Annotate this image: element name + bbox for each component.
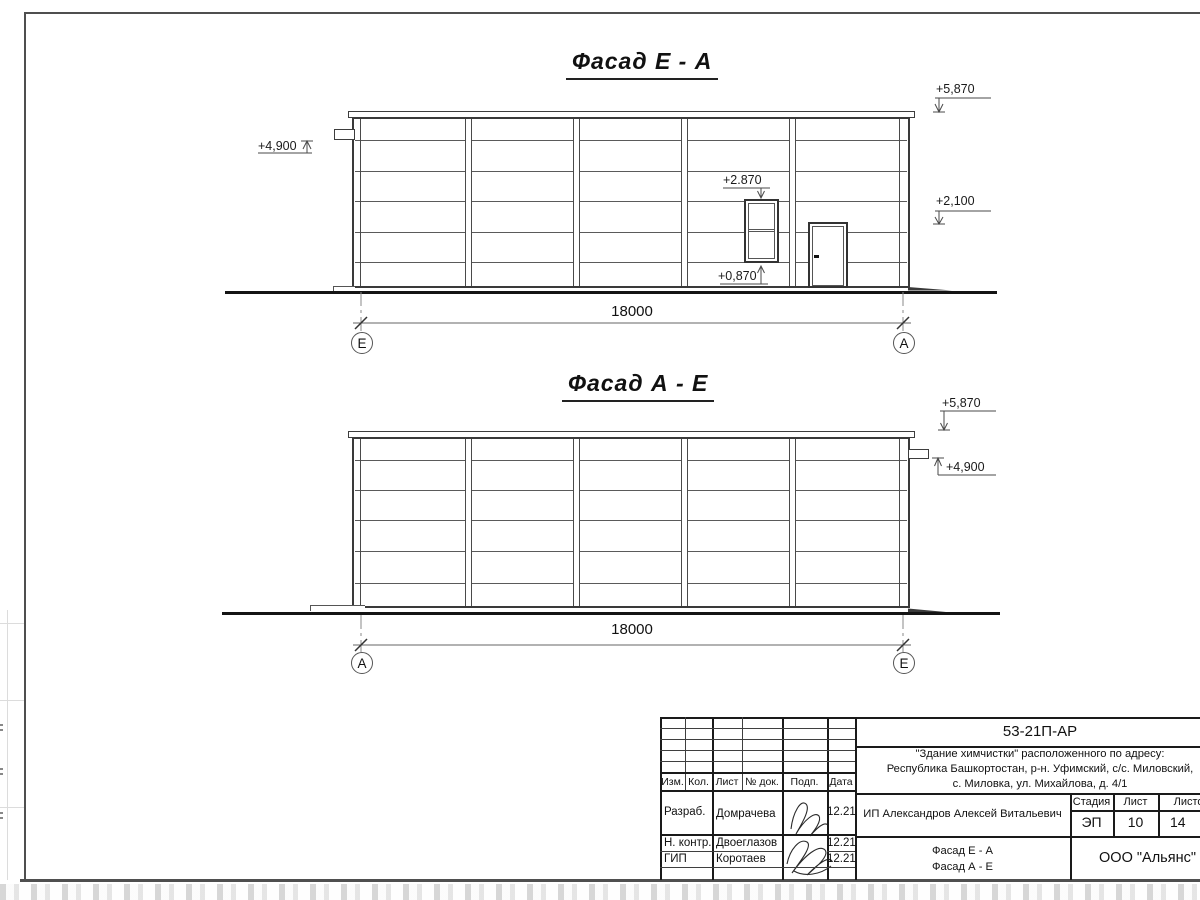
tb-client: ИП Александров Алексей Витальевич	[857, 808, 1068, 820]
axis-bubble-right: А	[893, 332, 915, 354]
tb-company: ООО "Альянс"	[1070, 850, 1200, 866]
plinth-step	[310, 605, 365, 611]
tb-role: ГИП	[664, 853, 687, 865]
frame-left	[24, 12, 26, 881]
level-arrow-down-icon	[933, 98, 991, 112]
mullion	[789, 119, 796, 286]
axis-bubble-right: Е	[893, 652, 915, 674]
tb-date: 12.21	[827, 837, 855, 849]
axis-bubble-left: Е	[351, 332, 373, 354]
elevation-mark-canopy: +4,900	[946, 460, 985, 474]
tb-col-podp: Подп.	[782, 776, 827, 788]
margin-text-mark	[0, 773, 3, 775]
margin-text-mark	[0, 724, 3, 726]
tb-col-ndok: № док.	[742, 776, 782, 788]
scan-edge-texture	[0, 884, 1200, 900]
tb-address-line1: "Здание химчистки" расположенного по адр…	[855, 748, 1200, 760]
wall-inner-line	[899, 119, 900, 286]
drawing-sheet: Фасад Е - А +5,870 +4,900 +2.870 +2,100	[0, 0, 1200, 900]
wall-inner-line	[360, 439, 361, 606]
wall-inner-line	[899, 439, 900, 606]
margin-text-mark	[0, 729, 3, 731]
tb-address-line3: с. Миловка, ул. Михайлова, д. 4/1	[855, 778, 1200, 790]
canopy-stub	[334, 129, 355, 140]
mullion	[573, 119, 580, 286]
panel-joint-line	[355, 201, 907, 202]
window-rail	[749, 229, 774, 232]
level-arrow-down-icon	[933, 211, 991, 224]
wall-inner-line	[360, 119, 361, 286]
tb-doc-number: 53-21П-АР	[855, 723, 1200, 740]
ground-line	[222, 612, 1000, 615]
axis-bubble-left: А	[351, 652, 373, 674]
mullion	[681, 119, 688, 286]
dimension-text: 18000	[582, 621, 682, 638]
margin-column-line	[7, 610, 8, 880]
canopy-stub	[908, 449, 929, 459]
tb-col-data: Дата	[827, 776, 855, 788]
tb-date: 12.21	[827, 806, 855, 818]
margin-row-line	[0, 623, 24, 624]
margin-row-line	[0, 700, 24, 701]
tb-col-izm: Изм.	[660, 776, 685, 788]
elevation-mark-door-top: +2,100	[936, 194, 975, 208]
tb-drawing-title-line2: Фасад А - Е	[855, 861, 1070, 873]
elevation-mark-window-top: +2.870	[723, 173, 762, 187]
level-arrow-down-icon	[938, 411, 996, 430]
panel-joint-line	[355, 551, 907, 552]
tb-sheet-label: Лист	[1113, 796, 1158, 808]
tb-stage-value: ЭП	[1070, 814, 1113, 830]
mullion	[789, 439, 796, 606]
tb-name: Двоеглазов	[716, 837, 777, 849]
signature-razrab	[791, 803, 828, 836]
ground-line	[225, 291, 997, 294]
frame-bottom	[20, 879, 1200, 882]
mullion	[465, 439, 472, 606]
elevation-mark-canopy: +4,900	[258, 139, 297, 153]
tb-sheets-value: 14	[1170, 814, 1186, 830]
panel-joint-line	[355, 140, 907, 141]
mullion	[681, 439, 688, 606]
tb-name: Коротаев	[716, 853, 766, 865]
margin-text-mark	[0, 817, 3, 819]
tb-date: 12.21	[827, 853, 855, 865]
tb-stage-label: Стадия	[1070, 796, 1113, 808]
panel-joint-line	[355, 171, 907, 172]
door-handle	[814, 255, 819, 258]
tb-col-kol: Кол.	[685, 776, 712, 788]
tb-col-list: Лист	[712, 776, 742, 788]
panel-joint-line	[355, 460, 907, 461]
frame-top	[24, 12, 1200, 14]
panel-joint-line	[355, 520, 907, 521]
panel-joint-line	[355, 490, 907, 491]
margin-text-mark	[0, 812, 3, 814]
tb-name: Домрачева	[716, 808, 776, 820]
margin-row-line	[0, 807, 24, 808]
panel-joint-line	[355, 583, 907, 584]
tb-sheet-value: 10	[1113, 814, 1158, 830]
signature-gip	[787, 841, 832, 875]
elevation-mark-parapet: +5,870	[942, 396, 981, 410]
margin-text-mark	[0, 768, 3, 770]
tb-drawing-title-line1: Фасад Е - А	[855, 845, 1070, 857]
facade-ae-title: Фасад А - Е	[562, 370, 714, 402]
tb-role: Н. контр.	[664, 837, 711, 849]
tb-address-line2: Республика Башкортостан, р-н. Уфимский, …	[855, 763, 1200, 775]
mullion	[465, 119, 472, 286]
dimension-text: 18000	[582, 303, 682, 320]
elevation-mark-window-sill: +0,870	[718, 269, 757, 283]
mullion	[573, 439, 580, 606]
tb-sheets-label: Листов	[1158, 796, 1200, 808]
tb-role: Разраб.	[664, 806, 705, 818]
elevation-mark-parapet: +5,870	[936, 82, 975, 96]
facade-ea-title: Фасад Е - А	[566, 48, 718, 80]
